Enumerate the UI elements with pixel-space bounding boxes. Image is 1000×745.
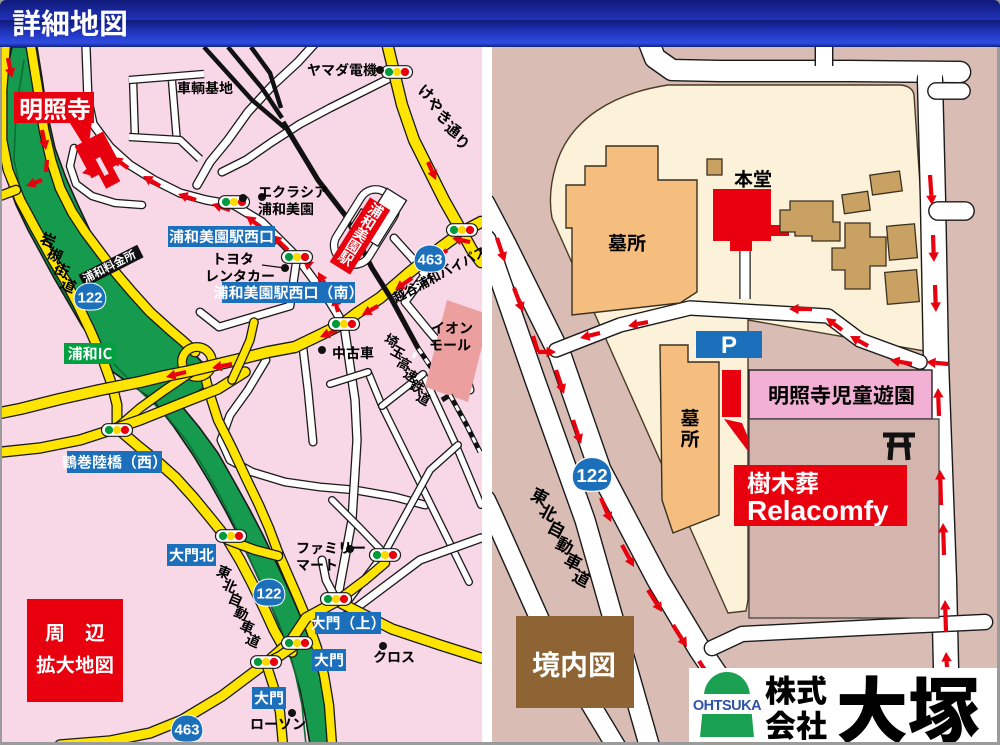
svg-text:OHTSUKA: OHTSUKA [693,698,762,714]
svg-text:463: 463 [417,252,442,269]
svg-text:122: 122 [256,586,281,603]
svg-text:122: 122 [576,465,607,486]
svg-text:Relacomfy: Relacomfy [747,495,889,526]
svg-text:463: 463 [174,722,199,739]
svg-text:P: P [721,332,737,359]
svg-text:122: 122 [77,290,102,307]
